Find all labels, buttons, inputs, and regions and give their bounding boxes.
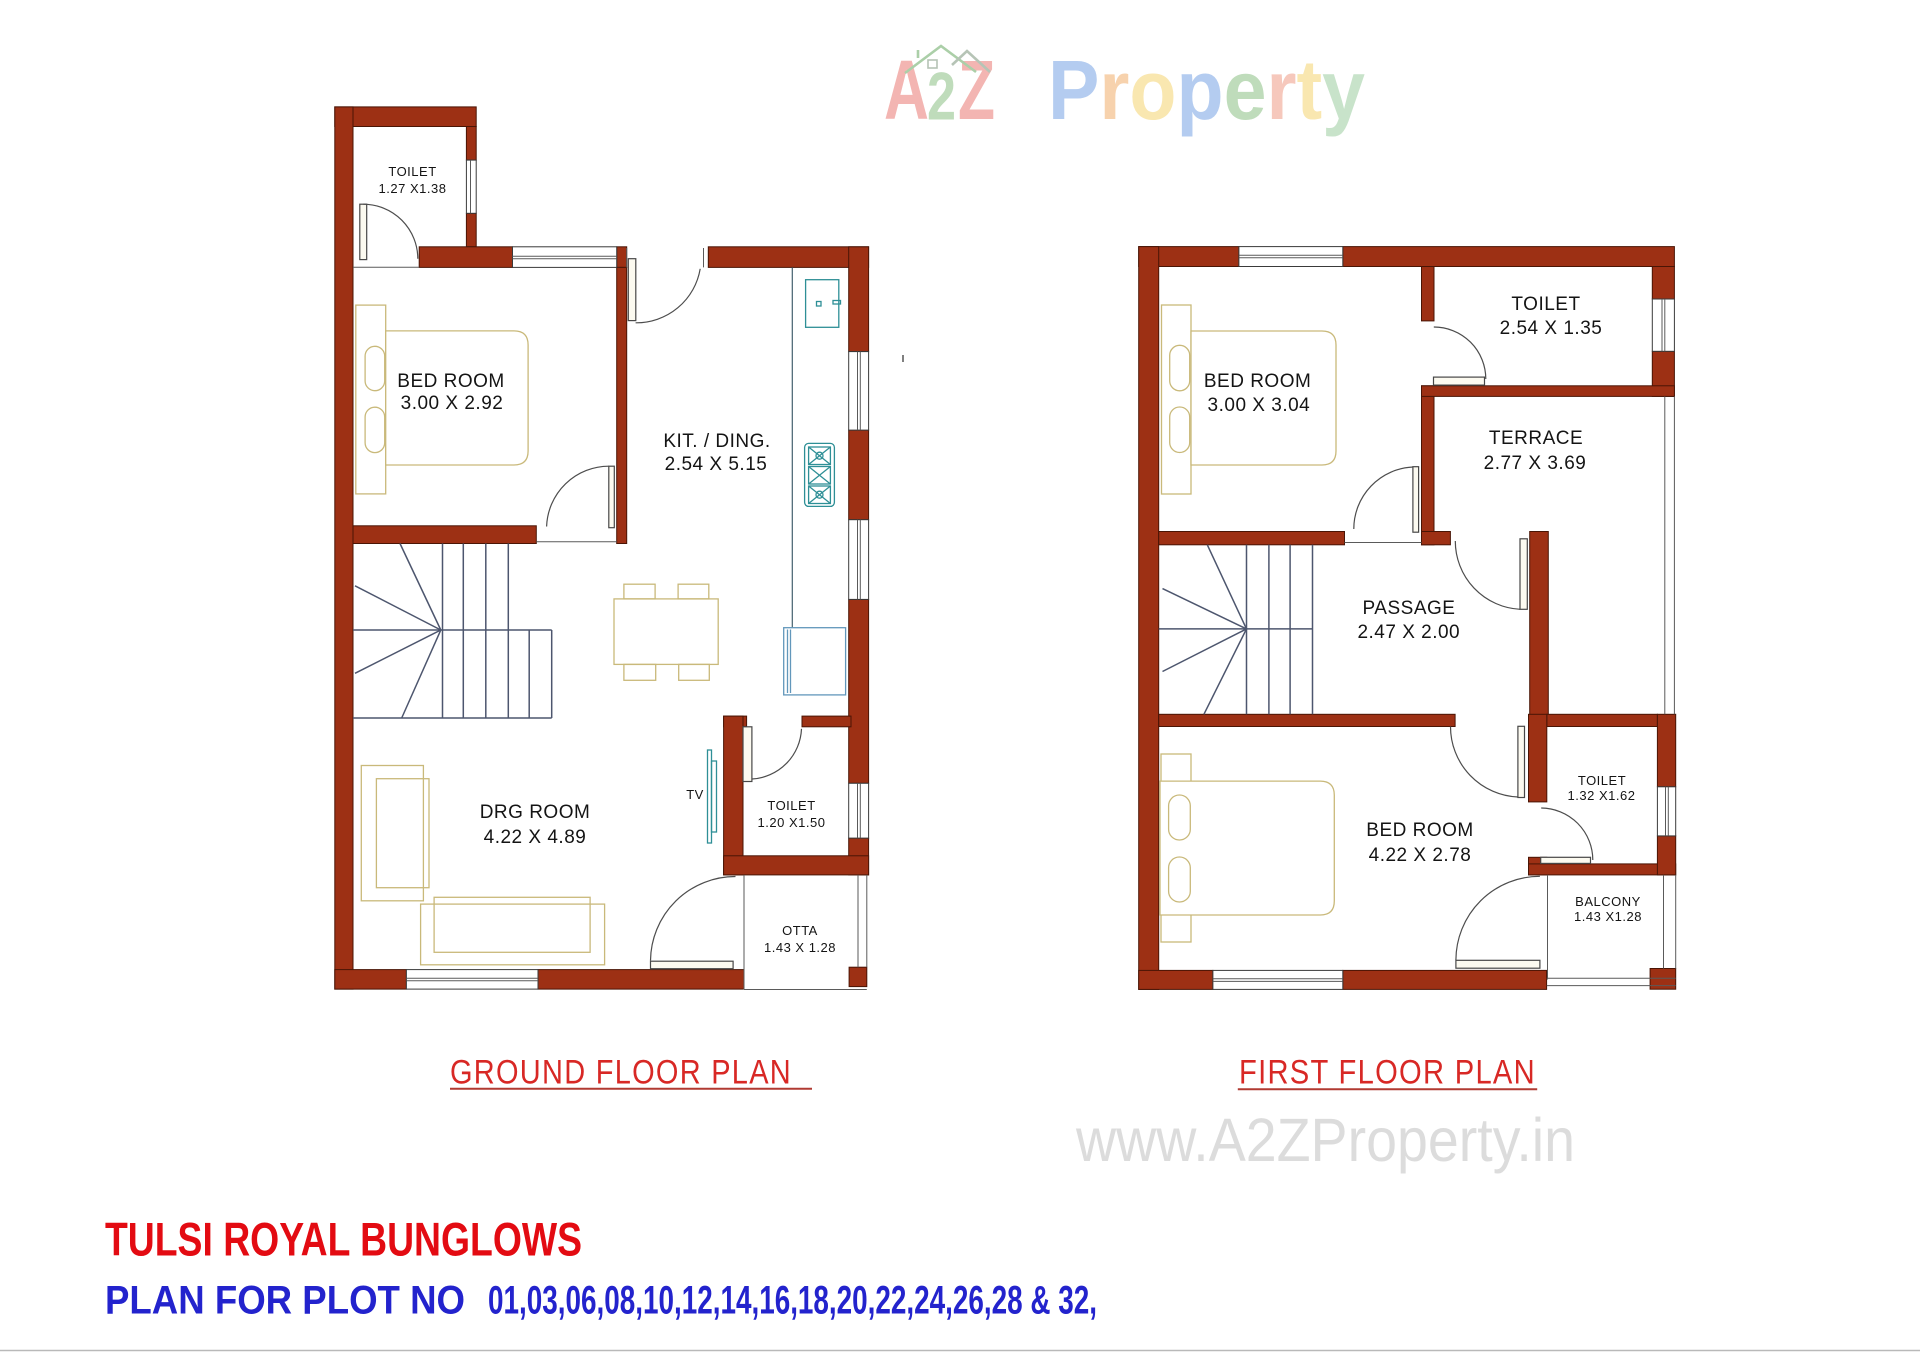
svg-text:2.54 X 5.15: 2.54 X 5.15 [665,454,768,475]
svg-text:TULSI ROYAL BUNGLOWS: TULSI ROYAL BUNGLOWS [105,1213,582,1266]
svg-text:2.77 X 3.69: 2.77 X 3.69 [1484,453,1587,474]
svg-text:01,03,06,08,10,12,14,16,18,20,: 01,03,06,08,10,12,14,16,18,20,22,24,26,2… [488,1279,1097,1323]
svg-text:1.43 X1.28: 1.43 X1.28 [1574,909,1642,924]
svg-text:TOILET: TOILET [1511,294,1580,315]
svg-text:DRG ROOM: DRG ROOM [480,802,591,823]
svg-text:3.00 X 2.92: 3.00 X 2.92 [401,393,504,414]
svg-text:4.22 X 4.89: 4.22 X 4.89 [484,827,587,848]
svg-text:BED ROOM: BED ROOM [1204,371,1311,392]
svg-text:TOILET: TOILET [388,164,436,179]
svg-text:2.54 X 1.35: 2.54 X 1.35 [1500,318,1603,339]
svg-text:2: 2 [927,59,956,135]
svg-text:BED ROOM: BED ROOM [1366,820,1473,841]
svg-text:PLAN FOR PLOT NO: PLAN FOR PLOT NO [105,1279,465,1323]
svg-text:1.43 X 1.28: 1.43 X 1.28 [764,940,836,955]
svg-text:1.27 X1.38: 1.27 X1.38 [379,181,447,196]
svg-text:KIT. / DING.: KIT. / DING. [663,431,770,452]
svg-text:A: A [884,43,929,137]
svg-text:TOILET: TOILET [1578,773,1626,788]
svg-text:TV: TV [686,787,704,802]
svg-text:Z: Z [958,43,995,137]
svg-text:TOILET: TOILET [767,798,815,813]
svg-text:PASSAGE: PASSAGE [1363,598,1456,619]
svg-text:3.00 X 3.04: 3.00 X 3.04 [1208,395,1311,416]
svg-text:OTTA: OTTA [782,923,818,938]
svg-text:BED ROOM: BED ROOM [397,371,504,392]
svg-text:BALCONY: BALCONY [1575,894,1641,909]
svg-text:www.A2ZProperty.in: www.A2ZProperty.in [1075,1106,1575,1174]
svg-text:1.20 X1.50: 1.20 X1.50 [758,815,826,830]
svg-text:2.47 X 2.00: 2.47 X 2.00 [1357,622,1460,643]
svg-text:TERRACE: TERRACE [1489,428,1583,449]
svg-text:GROUND FLOOR PLAN: GROUND FLOOR PLAN [450,1054,792,1092]
svg-text:Property: Property [1048,43,1365,137]
svg-text:1.32 X1.62: 1.32 X1.62 [1568,788,1636,803]
svg-text:FIRST FLOOR PLAN: FIRST FLOOR PLAN [1239,1054,1536,1092]
svg-text:4.22 X 2.78: 4.22 X 2.78 [1369,845,1472,866]
